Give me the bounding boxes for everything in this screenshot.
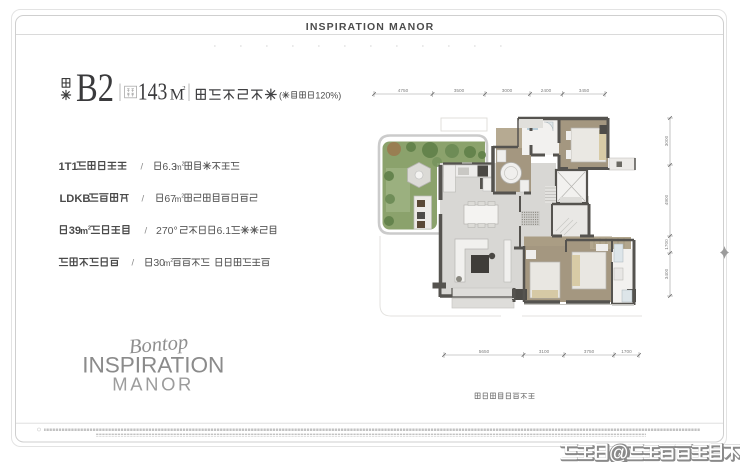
svg-text:270°: 270°	[156, 225, 178, 237]
svg-text:2: 2	[88, 226, 91, 232]
svg-text:INSPIRATION MANOR: INSPIRATION MANOR	[306, 21, 435, 33]
svg-text:/: /	[132, 258, 135, 269]
svg-text:4750: 4750	[398, 88, 409, 93]
svg-text:39: 39	[69, 225, 81, 237]
svg-text:143: 143	[138, 80, 168, 106]
svg-text:2: 2	[182, 162, 185, 168]
svg-text:3450: 3450	[579, 88, 590, 93]
svg-text:3500: 3500	[454, 88, 465, 93]
svg-text:B2: B2	[76, 65, 114, 110]
svg-text:2400: 2400	[541, 88, 552, 93]
svg-text:6.1: 6.1	[216, 225, 231, 237]
svg-text:1700: 1700	[664, 239, 669, 250]
svg-text:LDKB: LDKB	[60, 193, 91, 205]
svg-text:120%): 120%)	[315, 90, 341, 100]
svg-text:MANOR: MANOR	[112, 374, 194, 395]
svg-text:3100: 3100	[539, 349, 550, 354]
svg-text:5650: 5650	[479, 349, 490, 354]
svg-text:2: 2	[181, 194, 184, 200]
svg-text:/: /	[142, 193, 145, 204]
svg-text:/: /	[145, 226, 148, 237]
svg-text:@: @	[609, 443, 629, 462]
svg-text:3750: 3750	[584, 349, 595, 354]
svg-text:3000: 3000	[664, 135, 669, 146]
svg-text:2: 2	[182, 85, 185, 92]
svg-text:4900: 4900	[664, 194, 669, 205]
svg-text:3400: 3400	[664, 268, 669, 279]
svg-text:/: /	[141, 161, 144, 172]
svg-text:(: (	[279, 90, 282, 100]
svg-text:3000: 3000	[502, 88, 513, 93]
svg-text:1T1: 1T1	[59, 161, 78, 173]
svg-text:1700: 1700	[621, 349, 632, 354]
